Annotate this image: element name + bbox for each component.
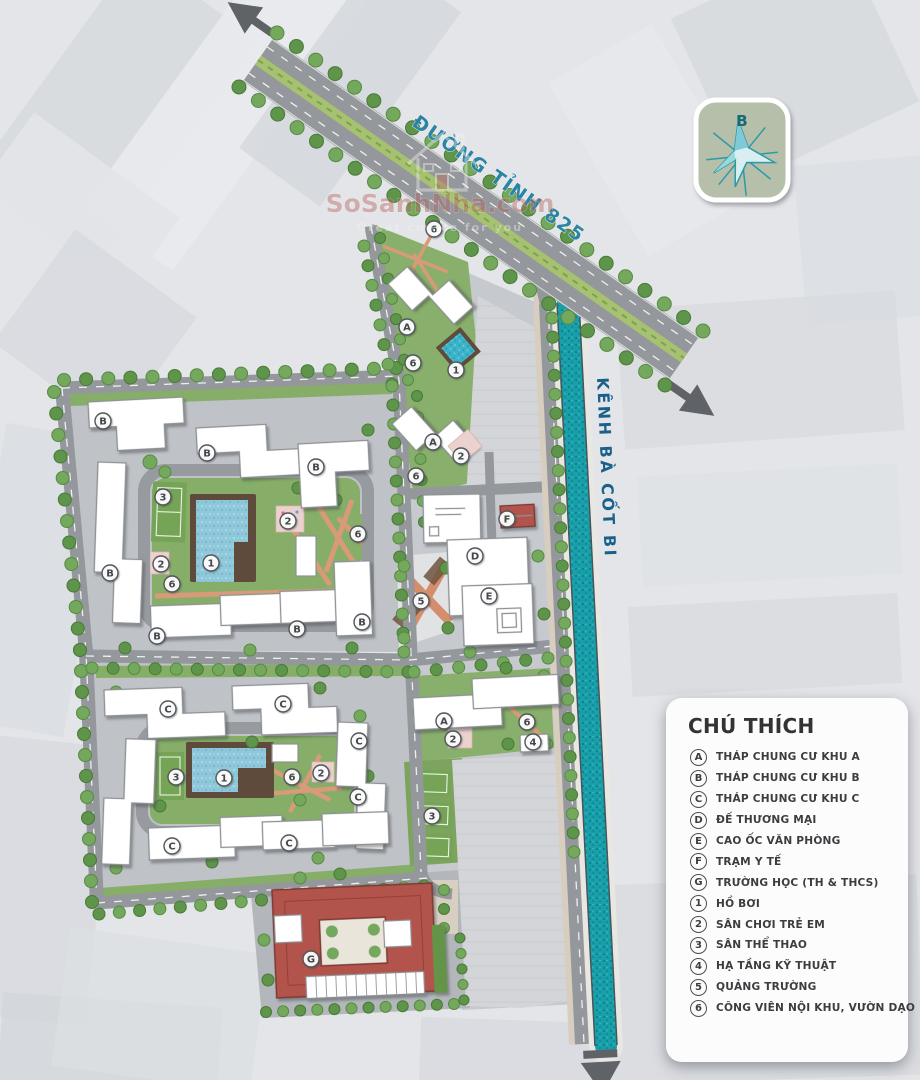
tree-icon [456, 949, 466, 959]
legend-item-2: 2SÂN CHƠI TRẺ EM [690, 914, 908, 935]
tree-icon [386, 107, 400, 121]
svg-text:C: C [355, 737, 362, 748]
map-marker-B: B [95, 413, 111, 429]
tree-icon [382, 358, 394, 370]
tree-icon [107, 662, 119, 674]
tree-icon [232, 80, 246, 94]
tree-icon [658, 378, 672, 392]
tree-icon [81, 791, 94, 804]
tree-icon [113, 906, 125, 918]
tree-icon [389, 456, 401, 468]
tree-icon [348, 80, 362, 94]
tree-icon [255, 664, 267, 676]
tree-icon [395, 589, 407, 601]
svg-text:A: A [403, 323, 411, 334]
tree-icon [553, 484, 565, 496]
map-marker-B: B [102, 565, 118, 581]
tree-icon [439, 904, 450, 915]
tree-icon [395, 334, 406, 345]
svg-text:A: A [440, 717, 448, 728]
tree-icon [346, 1003, 357, 1014]
legend-label-1: HỒ BƠI [716, 898, 760, 910]
tree-icon [154, 903, 166, 915]
tree-icon [86, 662, 98, 674]
map-marker-A: A [436, 713, 452, 729]
tree-icon [567, 827, 579, 839]
tree-icon [566, 789, 578, 801]
map-marker-6: 6 [284, 769, 300, 785]
tree-icon [134, 905, 146, 917]
tree-icon [475, 659, 487, 671]
tree-icon [297, 665, 309, 677]
tree-icon [69, 601, 82, 614]
tree-icon [301, 365, 314, 378]
map-marker-3: 3 [424, 808, 440, 824]
tree-icon [312, 852, 324, 864]
legend-item-6: 6CÔNG VIÊN NỘI KHU, VƯỜN DẠO [690, 998, 908, 1019]
tree-icon [75, 665, 88, 678]
pool-b-house [296, 536, 316, 576]
tree-icon [257, 366, 270, 379]
watermark-tagline: Great choice for you [357, 221, 523, 234]
tree-icon [381, 666, 393, 678]
tree-icon [457, 964, 467, 974]
map-marker-C: C [160, 701, 176, 717]
svg-text:C: C [285, 839, 292, 850]
tree-icon [328, 67, 342, 81]
tree-icon [170, 663, 182, 675]
tree-icon [554, 503, 566, 515]
svg-text:A: A [429, 438, 437, 449]
legend-item-B: BTHÁP CHUNG CƯ KHU B [690, 768, 908, 789]
tree-icon [368, 175, 382, 189]
school-canopy [306, 971, 425, 998]
map-marker-1: 1 [203, 555, 219, 571]
tree-icon [54, 450, 67, 463]
legend-label-D: ĐẾ THƯƠNG MẠI [716, 814, 817, 826]
tree-icon [563, 713, 575, 725]
map-marker-2: 2 [153, 556, 169, 572]
tree-icon [484, 256, 498, 270]
tree-icon [599, 256, 613, 270]
legend-key-C: C [690, 791, 707, 808]
map-marker-C: C [351, 733, 367, 749]
legend-item-4: 4HẠ TẦNG KỸ THUẬT [690, 956, 908, 977]
tree-icon [159, 466, 171, 478]
tree-icon [442, 622, 454, 634]
tree-icon [334, 868, 346, 880]
tree-icon [556, 560, 568, 572]
tree-icon [559, 617, 571, 629]
svg-text:3: 3 [173, 773, 180, 784]
tree-icon [289, 40, 303, 54]
map-marker-2: 2 [453, 448, 469, 464]
tree-icon [80, 770, 93, 783]
map-marker-6: 6 [408, 468, 424, 484]
map-marker-F: F [499, 511, 515, 527]
map-marker-6: 6 [350, 526, 366, 542]
tree-icon [366, 279, 378, 291]
tree-icon [552, 465, 564, 477]
svg-text:1: 1 [208, 559, 215, 570]
tree-icon [195, 899, 207, 911]
tree-icon [58, 493, 71, 506]
legend-key-2: 2 [690, 916, 707, 933]
tree-icon [548, 350, 560, 362]
tree-icon [378, 339, 390, 351]
tree-icon [520, 654, 532, 666]
school-wing-east [383, 920, 411, 947]
tree-icon [360, 666, 372, 678]
tree-icon [354, 710, 366, 722]
tree-icon [389, 437, 401, 449]
tree-icon [542, 297, 556, 311]
svg-text:2: 2 [285, 517, 292, 528]
bg-building-block [637, 463, 902, 586]
tree-icon [362, 260, 374, 272]
tree-icon [312, 1004, 323, 1015]
compass: B [696, 100, 788, 200]
tree-icon [549, 388, 561, 400]
tree-icon [149, 663, 161, 675]
legend-title: CHÚ THÍCH [688, 714, 908, 738]
tree-icon [362, 424, 374, 436]
map-marker-1: 1 [216, 770, 232, 786]
bg-building-block [628, 593, 902, 697]
tree-icon [379, 253, 390, 264]
tree-icon [657, 297, 671, 311]
tree-icon [391, 494, 403, 506]
tree-icon [191, 663, 203, 675]
tree-icon [79, 749, 92, 762]
tree-icon [564, 751, 576, 763]
tree-icon [174, 901, 186, 913]
tree-icon [459, 995, 469, 1005]
legend-item-A: ATHÁP CHUNG CƯ KHU A [690, 747, 908, 768]
watermark-brand: SoSanhNha.com [326, 189, 555, 218]
map-marker-C: C [275, 696, 291, 712]
map-marker-2: 2 [313, 765, 329, 781]
map-marker-B: B [354, 614, 370, 630]
legend-label-6: CÔNG VIÊN NỘI KHU, VƯỜN DẠO [716, 1002, 915, 1014]
map-marker-4: 4 [525, 734, 541, 750]
svg-text:F: F [504, 515, 511, 526]
legend-item-1: 1HỒ BƠI [690, 893, 908, 914]
svg-text:2: 2 [458, 452, 465, 463]
map-marker-3: 3 [168, 769, 184, 785]
svg-text:B: B [153, 632, 161, 643]
tree-icon [403, 375, 414, 386]
tree-icon [559, 636, 571, 648]
legend-key-B: B [690, 770, 707, 787]
tree-icon [397, 1001, 408, 1012]
tree-icon [262, 974, 274, 986]
svg-text:B: B [312, 463, 320, 474]
svg-text:6: 6 [410, 359, 417, 370]
tree-icon [398, 560, 410, 572]
svg-text:G: G [307, 955, 315, 966]
tree-icon [558, 598, 570, 610]
map-marker-A: A [399, 319, 415, 335]
legend-key-5: 5 [690, 979, 707, 996]
tree-icon [80, 373, 93, 386]
map-marker-5: 5 [413, 593, 429, 609]
svg-text:6: 6 [524, 718, 531, 729]
svg-text:3: 3 [429, 812, 436, 823]
legend-key-A: A [690, 749, 707, 766]
legend-label-F: TRẠM Y TẾ [716, 856, 781, 868]
tree-icon [563, 732, 575, 744]
map-marker-6: 6 [519, 714, 535, 730]
block-c-north-green [96, 670, 404, 672]
svg-text:6: 6 [355, 530, 362, 541]
svg-text:B: B [203, 449, 211, 460]
tree-icon [124, 371, 137, 384]
legend-label-G: TRƯỜNG HỌC (TH & THCS) [716, 877, 879, 889]
tree-icon [76, 686, 89, 699]
tree-icon [93, 908, 105, 920]
clubhouse [423, 494, 481, 543]
compass-north-label: B [736, 112, 747, 130]
tree-icon [348, 161, 362, 175]
tree-icon [555, 541, 567, 553]
tree-icon [367, 94, 381, 108]
legend-key-6: 6 [690, 1000, 707, 1017]
tree-icon [235, 367, 248, 380]
tree-icon [190, 369, 203, 382]
svg-text:6: 6 [289, 773, 296, 784]
tree-icon [52, 429, 65, 442]
tree-icon [119, 642, 131, 654]
svg-text:B: B [99, 417, 107, 428]
tree-icon [677, 311, 691, 325]
tree-icon [309, 53, 323, 67]
svg-text:1: 1 [221, 774, 228, 785]
map-marker-6: 6 [164, 576, 180, 592]
svg-text:6: 6 [413, 472, 420, 483]
svg-text:B: B [106, 569, 114, 580]
tree-icon [568, 846, 580, 858]
map-marker-3: 3 [155, 489, 171, 505]
legend-key-F: F [690, 853, 707, 870]
tree-icon [392, 513, 404, 525]
tree-icon [82, 812, 95, 825]
svg-text:C: C [168, 842, 175, 853]
tree-icon [48, 386, 61, 399]
tree-icon [455, 933, 465, 943]
tree-icon [295, 1005, 306, 1016]
tree-icon [77, 707, 90, 720]
legend-label-B: THÁP CHUNG CƯ KHU B [716, 772, 860, 784]
map-marker-1: 1 [448, 362, 464, 378]
tree-icon [696, 324, 710, 338]
tree-icon [546, 312, 558, 324]
tree-icon [386, 380, 398, 392]
tree-icon [555, 522, 567, 534]
tree-icon [557, 579, 569, 591]
tree-icon [168, 370, 181, 383]
legend-item-F: FTRẠM Y TẾ [690, 851, 908, 872]
tree-icon [390, 475, 402, 487]
tree-icon [431, 999, 442, 1010]
legend-item-D: DĐẾ THƯƠNG MẠI [690, 810, 908, 831]
legend-item-E: ECAO ỐC VĂN PHÒNG [690, 831, 908, 852]
tree-icon [56, 472, 69, 485]
tree-icon [523, 283, 537, 297]
tree-icon [251, 94, 265, 108]
tree-icon [464, 646, 476, 658]
tree-icon [439, 885, 450, 896]
legend-key-G: G [690, 874, 707, 891]
legend-item-G: GTRƯỜNG HỌC (TH & THCS) [690, 872, 908, 893]
map-marker-B: B [308, 459, 324, 475]
map-marker-2: 2 [445, 731, 461, 747]
tree-icon [638, 283, 652, 297]
tree-icon [453, 661, 465, 673]
school-wing-west [274, 915, 302, 943]
tree-icon [258, 934, 270, 946]
tree-icon [323, 364, 336, 377]
tree-icon [619, 351, 633, 365]
tree-icon [58, 374, 71, 387]
tree-icon [86, 896, 99, 909]
map-marker-2: 2 [280, 513, 296, 529]
tree-icon [85, 875, 98, 888]
legend-key-3: 3 [690, 937, 707, 954]
tree-icon [84, 854, 97, 867]
tree-icon [102, 372, 115, 385]
tree-icon [415, 454, 426, 465]
masterplan-screenshot: 6A61A26BBBBBBB326126FDE5A2643CCCCCC3162G… [0, 0, 920, 1080]
tree-icon [346, 642, 358, 654]
tree-icon [276, 664, 288, 676]
tree-icon [414, 1000, 425, 1011]
map-marker-G: G [303, 951, 319, 967]
tree-icon [552, 446, 564, 458]
tree-icon [256, 894, 268, 906]
tree-icon [74, 644, 87, 657]
tree-icon [367, 362, 380, 375]
tree-icon [561, 674, 573, 686]
tree-icon [215, 898, 227, 910]
legend-list: ATHÁP CHUNG CƯ KHU ABTHÁP CHUNG CƯ KHU B… [666, 747, 908, 1019]
legend-key-4: 4 [690, 958, 707, 975]
tree-icon [502, 738, 514, 750]
tree-icon [278, 1006, 289, 1017]
tree-icon [318, 665, 330, 677]
map-marker-C: C [350, 789, 366, 805]
map-marker-B: B [289, 621, 305, 637]
tree-icon [71, 622, 84, 635]
svg-text:C: C [279, 700, 286, 711]
map-marker-C: C [281, 835, 297, 851]
office-tower-e [462, 584, 534, 646]
legend-label-E: CAO ỐC VĂN PHÒNG [716, 835, 841, 847]
legend-item-C: CTHÁP CHUNG CƯ KHU C [690, 789, 908, 810]
tree-icon [128, 663, 140, 675]
tree-icon [430, 664, 442, 676]
legend-item-3: 3SÂN THỂ THAO [690, 935, 908, 956]
tree-icon [396, 608, 408, 620]
tree-icon [387, 399, 399, 411]
tree-icon [63, 536, 76, 549]
tree-icon [561, 310, 575, 324]
tree-icon [538, 608, 550, 620]
tree-icon [329, 148, 343, 162]
tree-icon [146, 370, 159, 383]
tree-icon [143, 455, 157, 469]
tree-icon [551, 426, 563, 438]
map-marker-6: 6 [405, 355, 421, 371]
tree-icon [639, 365, 653, 379]
map-marker-D: D [467, 548, 483, 564]
tree-icon [363, 1002, 374, 1013]
tree-icon [398, 632, 410, 644]
tree-icon [547, 331, 559, 343]
tree-icon [67, 579, 80, 592]
tree-icon [310, 134, 324, 148]
tree-icon [581, 324, 595, 338]
svg-text:1: 1 [453, 366, 460, 377]
map-marker-C: C [164, 838, 180, 854]
tree-icon [408, 666, 420, 678]
tree-icon [50, 407, 63, 420]
tree-icon [412, 391, 423, 402]
tree-icon [374, 319, 386, 331]
tree-icon [212, 368, 225, 381]
legend-key-D: D [690, 812, 707, 829]
tree-icon [449, 999, 460, 1010]
svg-text:2: 2 [450, 735, 457, 746]
tree-icon [65, 558, 78, 571]
legend-key-1: 1 [690, 895, 707, 912]
tree-icon [562, 693, 574, 705]
legend-label-3: SÂN THỂ THAO [716, 939, 807, 951]
tree-icon [464, 243, 478, 257]
tree-icon [78, 728, 91, 741]
tree-icon [542, 652, 554, 664]
tree-icon [345, 363, 358, 376]
svg-text:B: B [293, 625, 301, 636]
tree-icon [565, 770, 577, 782]
tree-icon [600, 337, 614, 351]
tree-icon [314, 682, 326, 694]
tree-icon [329, 1004, 340, 1015]
tree-icon [619, 270, 633, 284]
map-marker-B: B [199, 445, 215, 461]
legend-label-5: QUẢNG TRƯỜNG [716, 981, 817, 993]
school-g [272, 883, 448, 1000]
svg-text:6: 6 [169, 580, 176, 591]
tree-icon [375, 233, 386, 244]
svg-text:2: 2 [318, 769, 325, 780]
tree-icon [261, 1007, 272, 1018]
tree-icon [393, 532, 405, 544]
school-courtyard [319, 917, 387, 966]
svg-text:D: D [471, 552, 479, 563]
tree-icon [532, 550, 544, 562]
tree-icon [212, 664, 224, 676]
tree-icon [244, 644, 256, 656]
tree-icon [279, 366, 292, 379]
tree-icon [234, 664, 246, 676]
tree-icon [580, 243, 594, 257]
legend-label-C: THÁP CHUNG CƯ KHU C [716, 793, 860, 805]
tree-icon [270, 26, 284, 40]
tree-icon [387, 293, 398, 304]
tree-icon [235, 896, 247, 908]
tree-icon [271, 107, 285, 121]
